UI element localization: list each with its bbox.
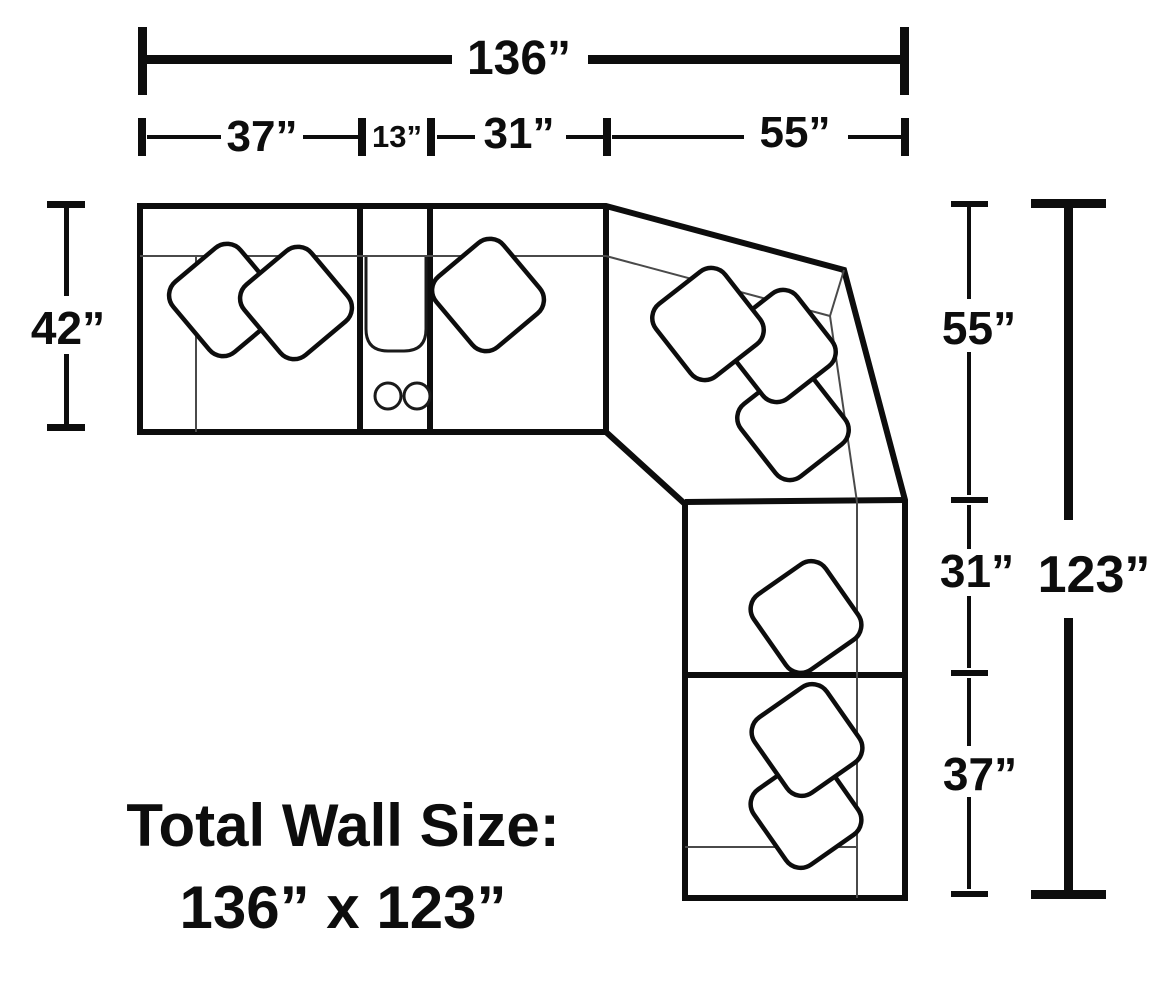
dimension-top-segments: 37” 13” 31” 55” [138, 108, 909, 161]
dimension-top-total: 136” [138, 27, 909, 95]
dimension-line [967, 797, 971, 889]
dimension-tick [951, 670, 988, 676]
dimension-tick [951, 497, 988, 503]
seat-cushion [233, 239, 360, 366]
dimension-tick [901, 118, 909, 156]
dimension-label-top-total: 136” [467, 32, 571, 85]
dimension-line [967, 505, 971, 549]
dimension-tick [603, 118, 611, 156]
dimension-line [1064, 618, 1073, 892]
dimension-line [967, 207, 971, 299]
dimension-tick [138, 118, 146, 156]
dimension-line [967, 678, 971, 746]
seat-cushion [425, 231, 552, 358]
dimension-tick [951, 201, 988, 207]
dimension-line [848, 135, 901, 139]
diagram-canvas: 136” 37” 13” 31” 55” 42” [0, 0, 1174, 1000]
dimension-end-bar [138, 27, 147, 95]
dimension-line [64, 354, 69, 424]
dimension-tick [951, 891, 988, 897]
console [366, 257, 430, 409]
seat-cushion [744, 554, 869, 680]
dimension-label-42: 42” [31, 302, 105, 354]
dimension-line [967, 596, 971, 668]
dimension-left-depth: 42” [31, 201, 105, 431]
dimension-label-right-37: 37” [943, 748, 1017, 800]
dimension-tick [358, 118, 366, 156]
dimension-label-55: 55” [760, 108, 831, 157]
dimension-end-bar [47, 201, 85, 208]
seat-cushion-shape [425, 231, 552, 358]
dimension-line [566, 135, 603, 139]
dimension-line [612, 135, 744, 139]
dimension-end-bar [47, 424, 85, 431]
seat-cushion-shape [233, 239, 360, 366]
dimension-label-13: 13” [372, 119, 422, 154]
dimension-label-right-31: 31” [940, 545, 1014, 597]
dimension-label-37: 37” [227, 112, 298, 161]
dimension-tick [427, 118, 435, 156]
dimension-line [588, 55, 900, 64]
dimension-right-segments: 55” 31” 37” [940, 201, 1017, 897]
dimension-label-31: 31” [484, 109, 555, 158]
dimension-line [64, 208, 69, 296]
total-wall-size-caption: Total Wall Size: 136” x 123” [126, 792, 559, 941]
cupholder-icon [404, 383, 430, 409]
dimension-line [147, 135, 221, 139]
dimension-right-total: 123” [1031, 199, 1150, 899]
section-divider [685, 500, 905, 502]
dimension-line [147, 55, 452, 64]
sofa-floorplan-diagram: 136” 37” 13” 31” 55” 42” [0, 0, 1174, 1000]
dimension-label-123: 123” [1038, 546, 1151, 604]
cupholder-icon [375, 383, 401, 409]
caption-line-2: 136” x 123” [180, 874, 507, 941]
dimension-line [967, 352, 971, 495]
dimension-line [1064, 206, 1073, 520]
dimension-label-right-55: 55” [942, 302, 1016, 354]
cushions [162, 231, 870, 874]
dimension-end-bar [900, 27, 909, 95]
caption-line-1: Total Wall Size: [126, 792, 559, 859]
seat-cushion-shape [744, 554, 869, 680]
corner-miter-line [830, 270, 844, 316]
console-tray [366, 257, 426, 351]
dimension-line [303, 135, 358, 139]
dimension-line [437, 135, 475, 139]
